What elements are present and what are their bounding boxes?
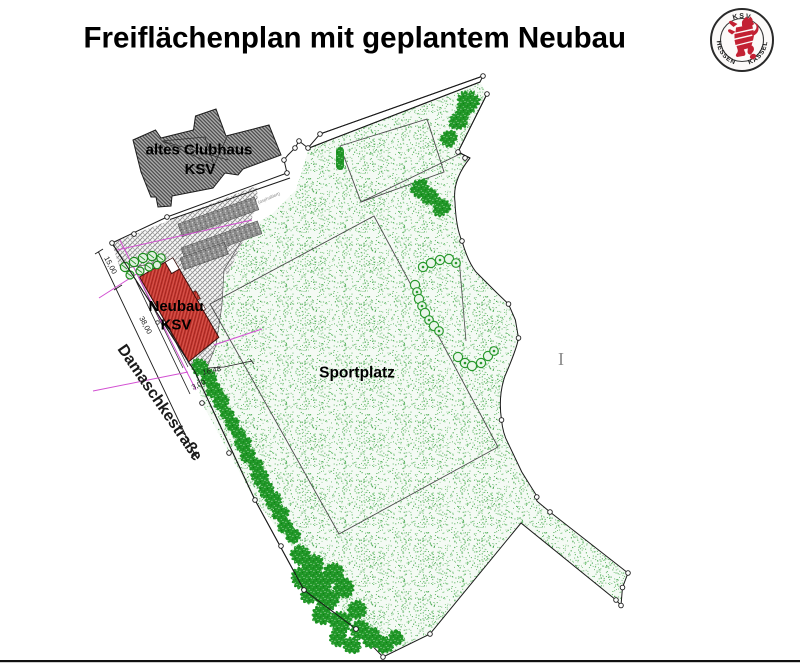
- svg-text:Sportplatz: Sportplatz: [319, 365, 395, 382]
- svg-text:KSV: KSV: [161, 317, 192, 334]
- svg-text:I: I: [558, 349, 564, 369]
- svg-text:KSV: KSV: [185, 161, 216, 178]
- svg-text:Neubau: Neubau: [148, 298, 203, 315]
- svg-text:38,00: 38,00: [137, 315, 154, 336]
- svg-text:altes Clubhaus: altes Clubhaus: [146, 142, 253, 159]
- svg-text:Freiflächenplan mit geplantem: Freiflächenplan mit geplantem Neubau: [84, 22, 627, 55]
